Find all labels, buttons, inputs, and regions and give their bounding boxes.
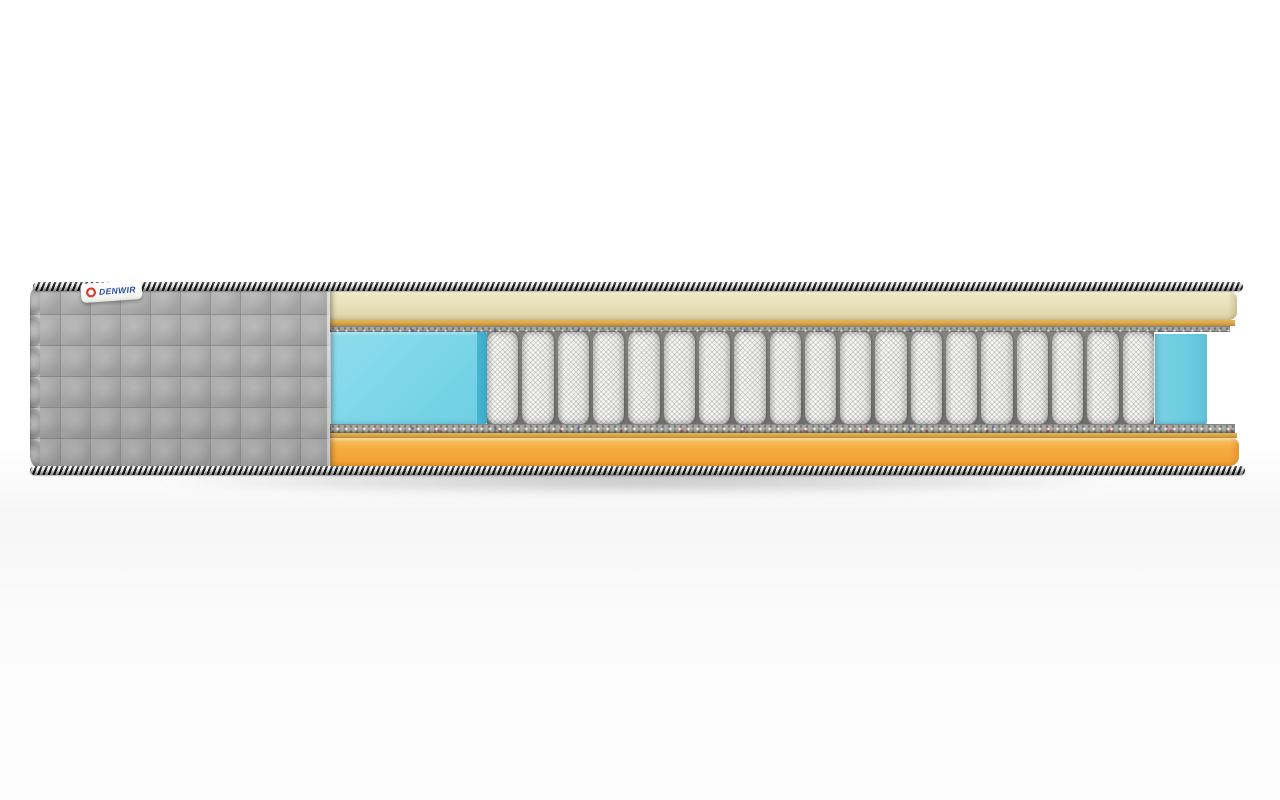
- pocket-spring: [699, 332, 730, 424]
- pocket-spring: [981, 332, 1012, 424]
- pocket-spring: [1087, 332, 1118, 424]
- product-image-stage: DENWIR: [0, 0, 1280, 800]
- spring-core-zone: [330, 332, 1237, 424]
- brand-name: DENWIR: [99, 285, 136, 296]
- pocket-spring: [628, 332, 659, 424]
- layer-memory-foam-block: [331, 332, 477, 424]
- pocket-spring: [522, 332, 553, 424]
- pocket-spring: [770, 332, 801, 424]
- brand-logo-icon: [86, 287, 97, 298]
- pocket-spring: [1052, 332, 1083, 424]
- pocket-spring: [1017, 332, 1048, 424]
- pocket-spring: [805, 332, 836, 424]
- layer-top-comfort-foam: [330, 291, 1237, 320]
- memory-foam-block-side-face: [477, 332, 487, 424]
- pocket-spring-unit: [487, 332, 1154, 424]
- pocket-spring: [664, 332, 695, 424]
- mattress-cutaway: DENWIR: [30, 281, 1245, 475]
- pocket-spring: [1123, 332, 1154, 424]
- foam-end-panel: [1155, 334, 1207, 424]
- pocket-spring: [875, 332, 906, 424]
- pocket-spring: [593, 332, 624, 424]
- pocket-spring: [840, 332, 871, 424]
- pocket-spring: [734, 332, 765, 424]
- layer-felt-pad-bottom: [330, 424, 1235, 433]
- pocket-spring: [558, 332, 589, 424]
- braided-edge-cord-top: [33, 282, 1243, 291]
- quilted-cover: [30, 284, 330, 470]
- braided-edge-cord-bottom: [30, 466, 1245, 475]
- pocket-spring: [946, 332, 977, 424]
- pocket-spring: [487, 332, 518, 424]
- layer-base-foam: [330, 438, 1239, 466]
- pocket-spring: [911, 332, 942, 424]
